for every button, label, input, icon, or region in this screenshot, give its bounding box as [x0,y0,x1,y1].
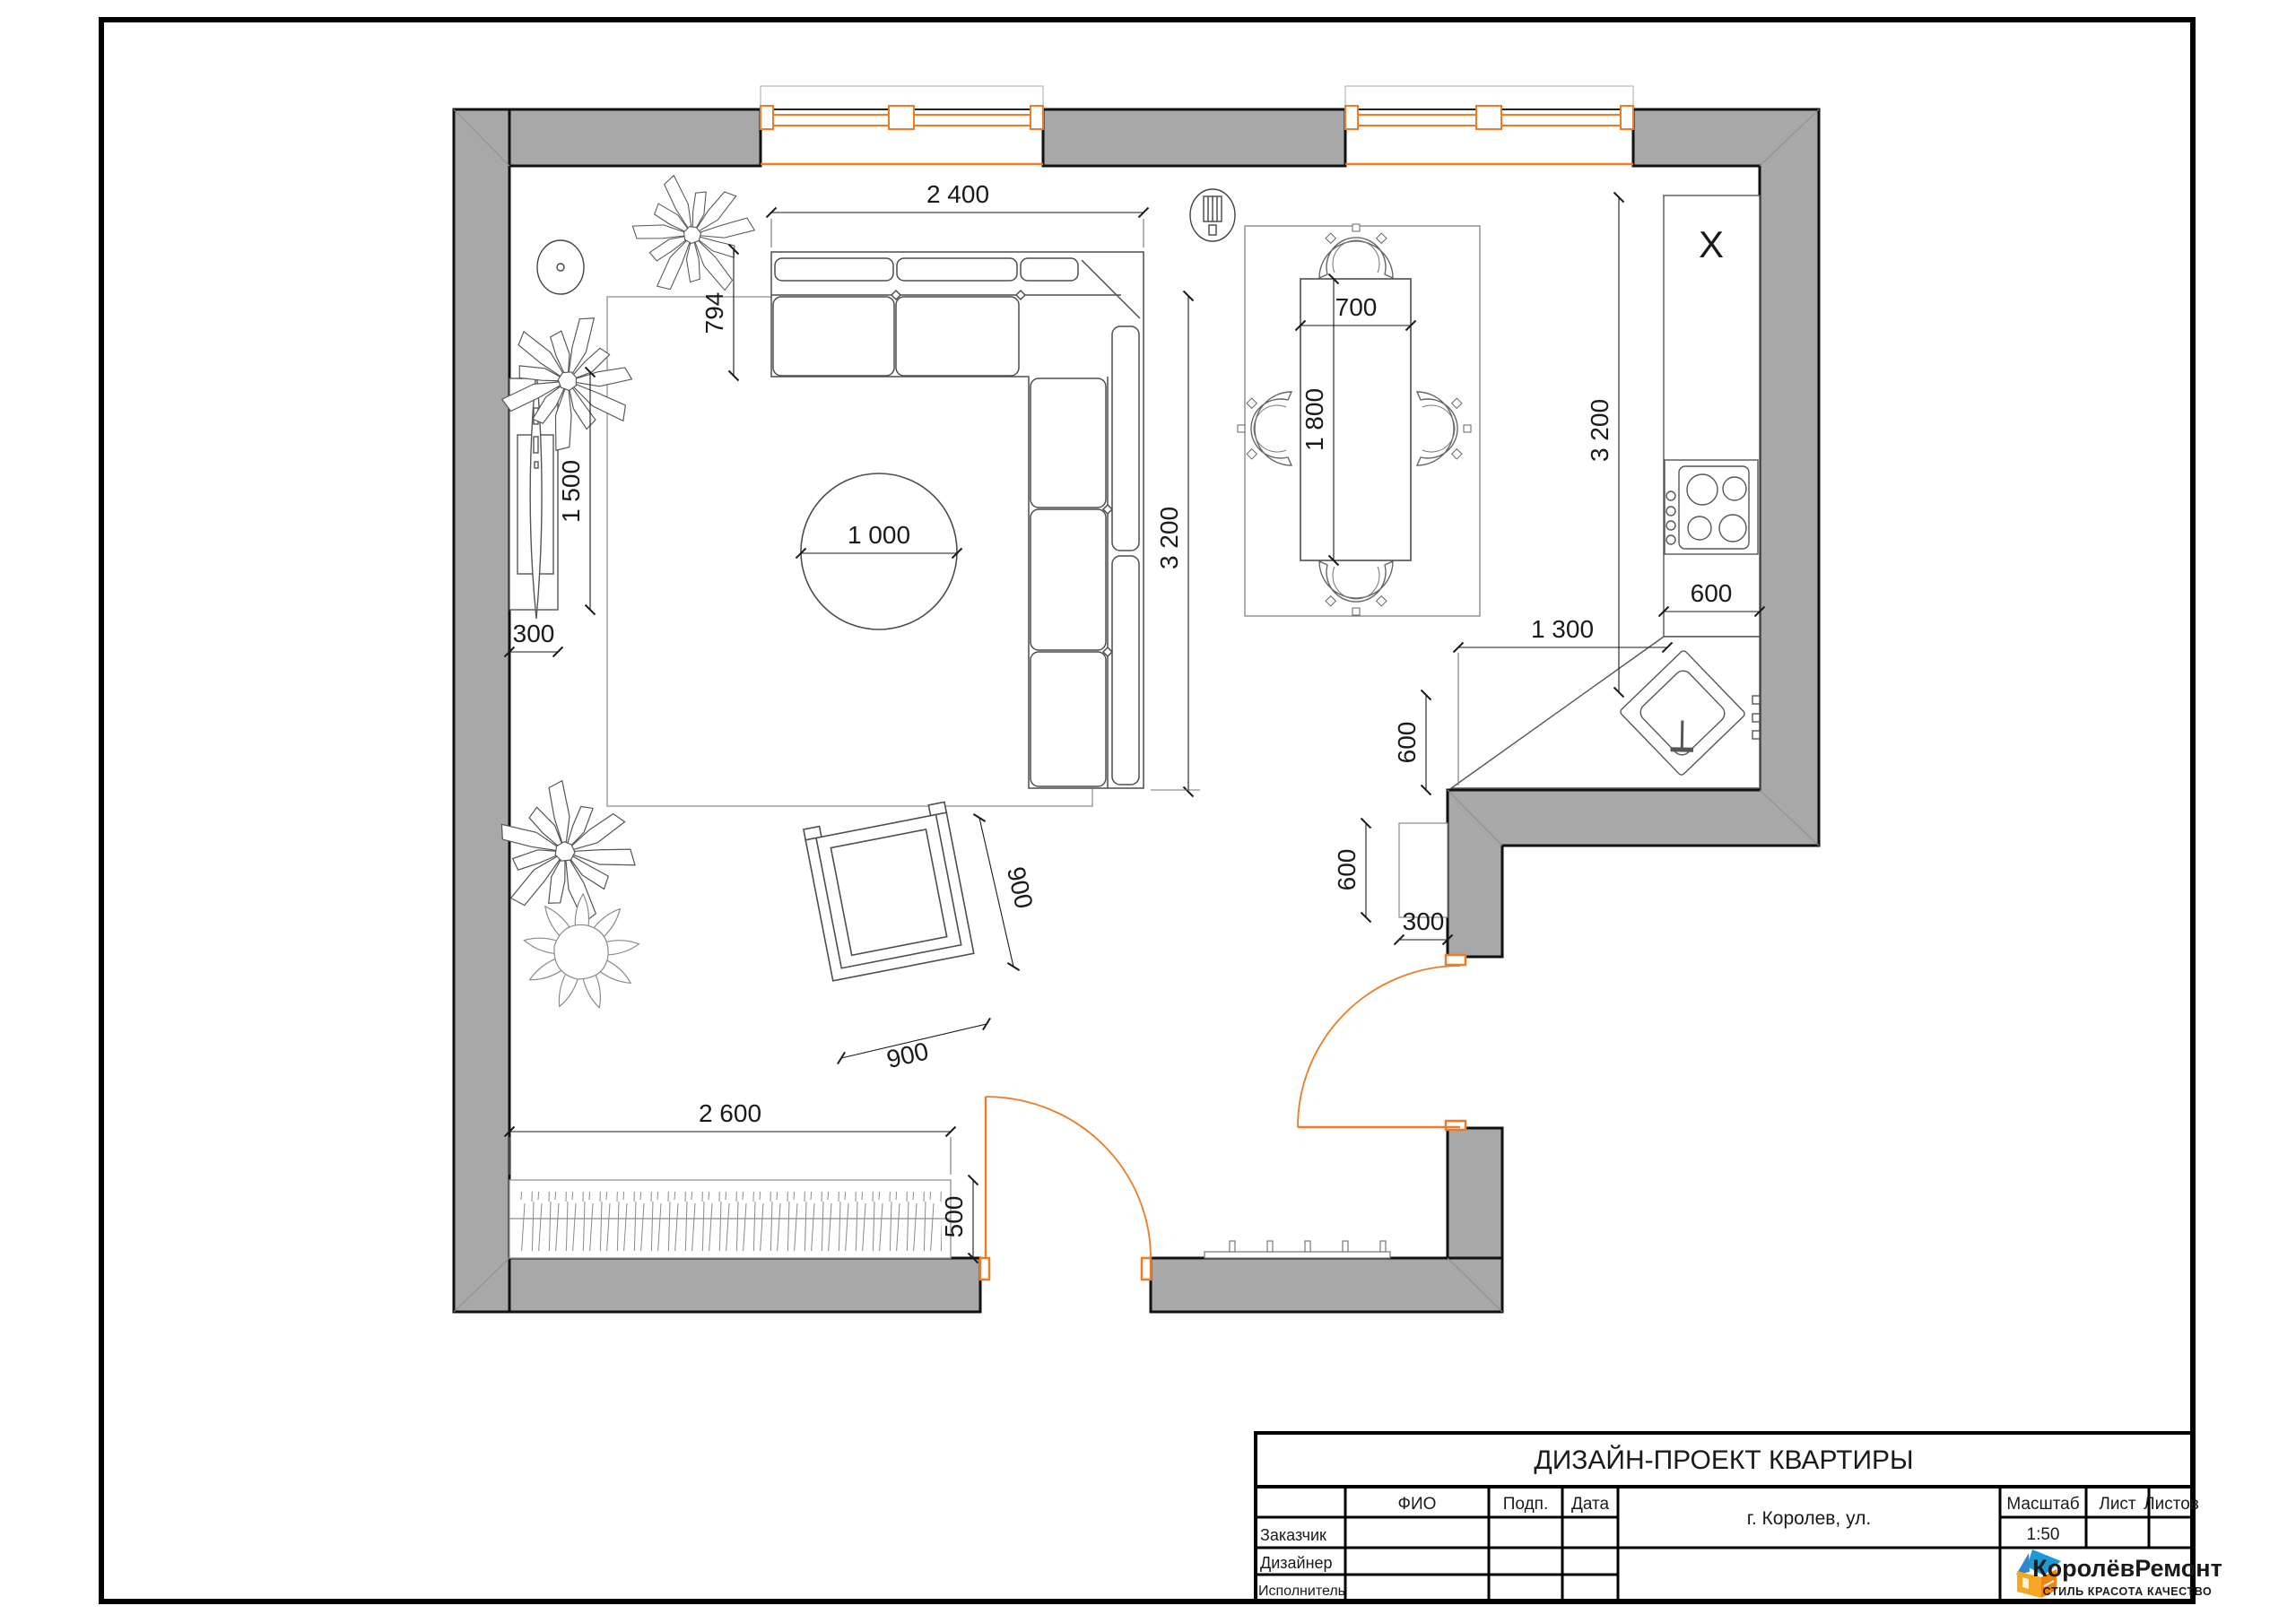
title-block: ДИЗАЙН-ПРОЕКТ КВАРТИРЫ ФИО Подп. Дата Ма… [1256,1433,2222,1601]
dim-dining-length: 1 800 [1300,388,1328,451]
logo-subtitle: СТИЛЬ КРАСОТА КАЧЕСТВО [2043,1585,2213,1598]
col-fio: ФИО [1398,1495,1437,1514]
dining-chair-top [1319,224,1393,278]
logo-roller-icon [2022,1577,2029,1589]
door-frame [1446,955,1465,965]
room-door [1298,955,1465,1130]
dim-counter-corner: 1 300 [1531,615,1594,643]
wall-bottom-entrance [1151,1258,1502,1312]
dining-chair-left [1238,392,1291,465]
col-podp: Подп. [1503,1495,1548,1514]
door-frame [980,1258,989,1280]
dim-dining-width: 700 [1335,293,1378,321]
dim-wardrobe-width: 2 600 [699,1099,761,1127]
wall-door-pier [1448,1128,1502,1258]
window-frame-post [1621,106,1633,129]
row-designer: Дизайнер [1260,1554,1333,1572]
col-data: Дата [1571,1495,1610,1514]
scale-value: 1:50 [2027,1525,2060,1544]
armchair [804,802,974,980]
window-frame-post [1476,106,1501,129]
ceiling-light-left [537,240,584,294]
logo-text: КоролёвРемонт [2032,1555,2222,1582]
row-executor: Исполнитель [1258,1584,1345,1599]
dining-chair-right [1417,392,1471,465]
flower-plant [523,893,639,1010]
dim-living-depth: 3 200 [1155,507,1183,569]
plant [631,174,755,294]
door-frame [1446,1121,1465,1130]
hall-cabinet [1399,823,1448,917]
dim-tv-depth: 300 [513,620,555,647]
wall-bottom-left [509,1258,980,1312]
dim-wardrobe-depth: 500 [940,1196,968,1238]
dim-hall-cabinet-length: 600 [1333,849,1361,891]
window-2 [1345,86,1633,164]
door-frame [1142,1258,1151,1280]
col-scale: Масштаб [2006,1495,2079,1514]
window-frame-post [1345,106,1358,129]
counter-x-mark: X [1699,223,1724,265]
dim-armchair-width: 900 [884,1037,931,1073]
window-frame-post [1031,106,1043,129]
coffee-table-round [801,473,957,629]
sheet-title: ДИЗАЙН-ПРОЕКТ КВАРТИРЫ [1534,1445,1913,1475]
wall-right-kitchen [1448,109,1819,957]
wardrobe [509,1180,951,1258]
floor-plan-sheet: X [0,0,2296,1623]
dim-sofa-width: 2 400 [926,180,989,208]
wall-top-pier-1 [509,109,761,166]
window-frame-post [889,106,914,129]
company-logo: КоролёвРемонт СТИЛЬ КРАСОТА КАЧЕСТВО [2016,1549,2222,1598]
dim-round-table: 1 000 [848,521,910,549]
shoe-rack [1205,1241,1390,1258]
window-1 [761,86,1043,164]
dim-tv-length: 1 500 [557,460,585,523]
wall-left [454,109,509,1312]
dim-armchair-depth: 900 [1002,864,1039,911]
row-customer: Заказчик [1260,1526,1326,1544]
project-address: г. Королев, ул. [1747,1508,1871,1529]
col-sheet: Лист [2099,1495,2136,1514]
col-sheets: Листов [2144,1495,2199,1514]
wall-top-pier-2 [1043,109,1345,166]
door-swing-arc [986,1097,1151,1258]
entry-door [980,1097,1151,1280]
dim-counter-width: 600 [1691,579,1733,607]
dim-hall-cabinet-depth: 300 [1403,907,1445,935]
ceiling-light-right [1190,189,1235,241]
window-frame-post [761,106,773,129]
dim-sink-offset: 600 [1393,722,1421,764]
dim-sofa-depth: 794 [700,292,728,334]
dim-kitchen-length: 3 200 [1586,399,1613,462]
dining-chair-bottom [1319,561,1393,615]
door-swing-arc [1298,966,1460,1127]
page-border [101,20,2193,1601]
